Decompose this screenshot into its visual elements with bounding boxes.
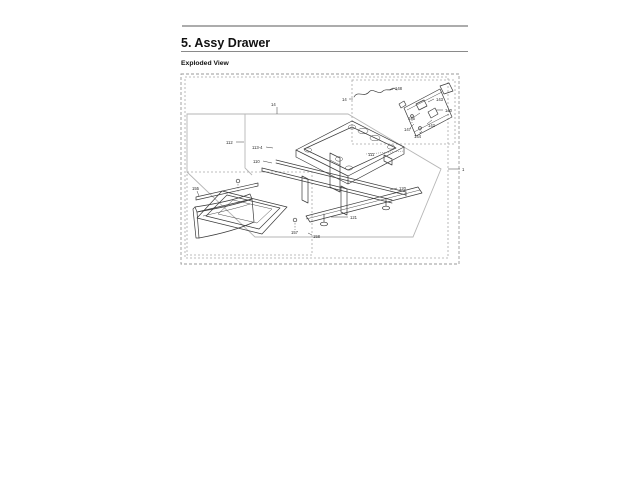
screw-icon <box>293 218 297 230</box>
drawer-front-panel <box>197 199 254 238</box>
connector-part <box>399 101 406 108</box>
perspective-plane <box>187 114 441 237</box>
leveling-foot <box>320 214 327 226</box>
callout-label: 142 <box>428 123 436 128</box>
figure-outer-border <box>181 74 459 264</box>
leader-line <box>263 161 272 163</box>
callout-label: 14 <box>271 102 276 107</box>
leader-line <box>428 99 434 102</box>
service-manual-page: 5. Assy Drawer Exploded View <box>0 0 640 480</box>
figure-subtitle: Exploded View <box>181 60 230 67</box>
exploded-view-figure: 5. Assy Drawer Exploded View <box>0 0 640 480</box>
leader-line <box>197 191 199 196</box>
drawer-tub-rim <box>197 191 287 234</box>
drawer-assembly-art <box>193 179 297 238</box>
callout-label: 158 <box>313 234 321 239</box>
callout-label: 143 <box>436 97 444 102</box>
callout-label: 113-4 <box>252 145 263 150</box>
leader-line <box>308 233 312 235</box>
drawer-subassembly-box <box>187 172 312 255</box>
board-component <box>416 100 427 110</box>
front-post <box>302 176 308 203</box>
leader-line <box>266 147 273 148</box>
top-frame-inner <box>304 127 396 170</box>
callout-label: 157 <box>291 230 299 235</box>
bracket-part <box>440 83 453 94</box>
callout-label: 121 <box>350 215 358 220</box>
callout-label: 112 <box>226 140 233 145</box>
callout-label: 144 <box>414 134 422 139</box>
callout-label: 148 <box>395 86 403 91</box>
callout-label: 120 <box>399 186 407 191</box>
slide-rails <box>262 160 406 203</box>
callout-label: 140 <box>445 108 453 113</box>
callout-label: 1 <box>462 167 465 172</box>
plane-divider-line <box>245 114 252 175</box>
drawer-front-top <box>195 194 252 212</box>
callout-label: 111 <box>368 152 375 157</box>
main-assembly-art <box>262 121 422 226</box>
callout-label: 145 <box>408 116 416 121</box>
page-title: 5. Assy Drawer <box>181 36 270 50</box>
callout-label: 155 <box>192 186 200 191</box>
callout-label: 14 <box>342 97 347 102</box>
callout-label: 110 <box>253 159 260 164</box>
leveling-foot <box>382 198 389 210</box>
callout-label: 147 <box>404 127 412 132</box>
board-component <box>428 108 438 118</box>
